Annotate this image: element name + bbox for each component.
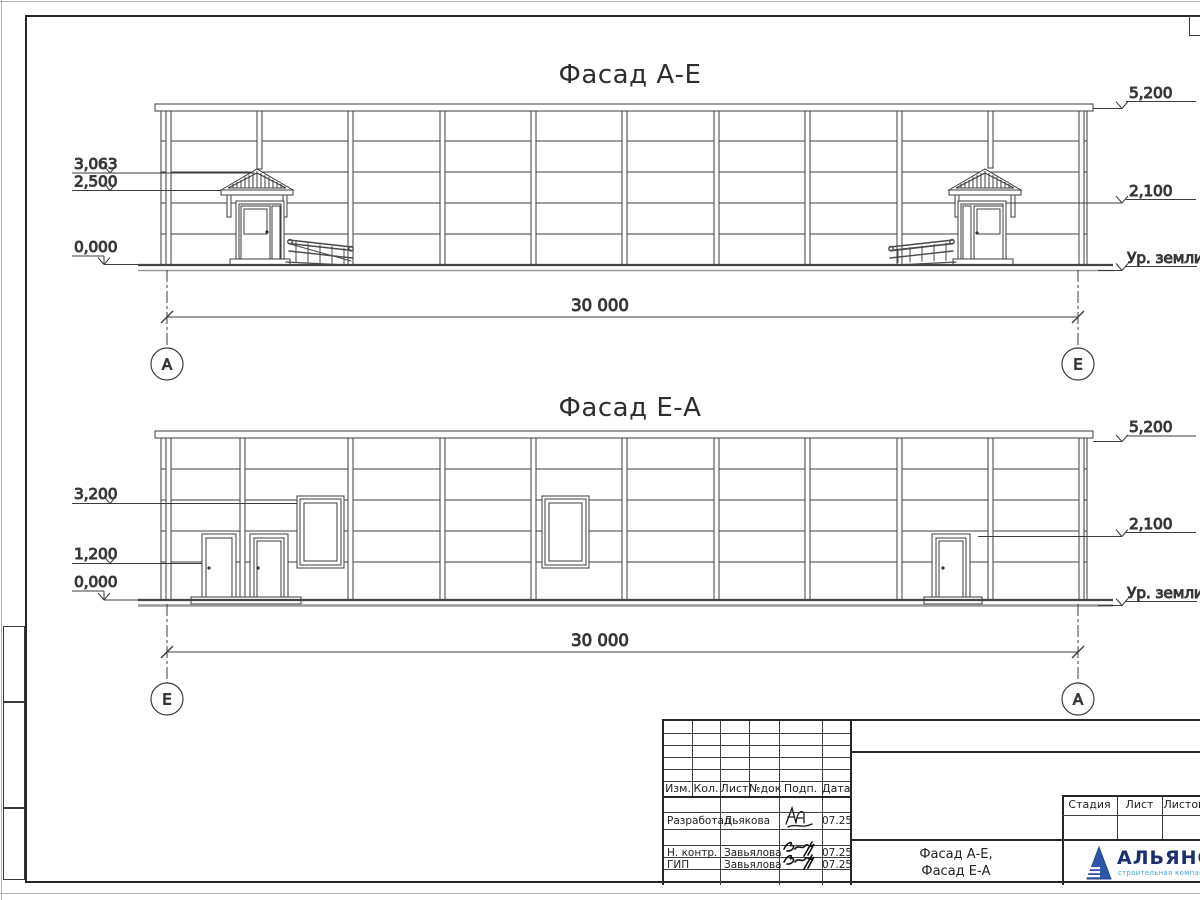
mark-2100-ae: 2,100 [1129,182,1172,200]
mark-1200: 1,200 [74,545,117,563]
mark-5200-ea: 5,200 [1129,418,1172,436]
facade-ea-title: Фасад Е-А [559,393,702,423]
stage-stadia: Стадия [1062,798,1117,812]
axis-bubble-a2: А [1073,691,1084,709]
logo-pyramid-icon [1086,846,1112,880]
staff-role-2: ГИП [667,858,723,872]
title-block: Изм. Кол. Лист №док Подп. Дата Разработа… [662,719,1200,885]
facade-ae-title: Фасад А-Е [559,60,702,90]
axis-bubble-e1: Е [1073,356,1082,374]
company-logo: АЛЬЯНС строительная компания [1062,839,1200,885]
logo-subtitle: строительная компания [1118,869,1200,877]
staff-date-2: 07.25 [822,858,850,872]
mark-2100-ea: 2,100 [1129,515,1172,533]
signature-zavyalova-2 [781,853,821,870]
mark-ground-ea: Ур. земли [1127,584,1200,602]
axis-bubble-e2: Е [162,691,171,709]
col-list: Лист [720,782,749,796]
ground-line-ae [138,265,1113,271]
staff-name-0: Дьякова [724,814,779,828]
logo-name: АЛЬЯНС [1117,848,1200,868]
mark-3200: 3,200 [74,485,117,503]
door-ea-3 [924,534,982,604]
ramp-left-entrance [286,240,356,266]
staff-name-2: Завьялова [724,858,779,872]
col-ndok: №док [749,782,779,796]
door-ea-2 [250,534,288,599]
elevation-marks-ea-right: 5,200 2,100 Ур. земли [978,418,1200,606]
door-ea-1 [202,534,236,599]
elevation-marks-ae-right: 5,200 2,100 Ур. земли [1008,84,1200,271]
col-kol: Кол. [692,782,720,796]
col-data: Дата [822,782,850,796]
drawing-sheet: Фасад А-Е [0,0,1200,900]
facade-ae-view: Фасад А-Е [72,60,1200,380]
staff-date-0: 07.25 [822,814,850,828]
mark-ground-ae: Ур. земли [1127,249,1200,267]
col-izm: Изм. [664,782,692,796]
entrance-right [949,169,1021,265]
span-dimension-ae: 30 000 А Е [151,270,1094,380]
sheet-title: Фасад А-Е, Фасад Е-А [850,846,1062,880]
stage-listov: Листов [1162,798,1200,812]
col-podp: Подп. [779,782,822,796]
entrance-left [221,169,293,265]
mark-0000-ae: 0,000 [74,238,117,256]
mark-5200-ae: 5,200 [1129,84,1172,102]
span-30000-ea: 30 000 [571,631,629,650]
signature-dyakova [781,805,821,831]
staff-role-0: Разработал [667,814,723,828]
stage-list: Лист [1117,798,1162,812]
facade-ea-view: Фасад Е-А [72,393,1200,715]
mark-2500: 2,500 [74,173,117,191]
axis-bubble-a1: А [162,356,173,374]
span-30000-ae: 30 000 [571,296,629,315]
mark-0000-ea: 0,000 [74,573,117,591]
span-dimension-ea: 30 000 Е А [151,604,1094,715]
sheet-title-line1: Фасад А-Е, [850,846,1062,863]
sheet-title-line2: Фасад Е-А [850,863,1062,880]
window-ea-1 [297,496,344,568]
window-ea-2 [542,496,589,568]
mark-3063: 3,063 [74,155,117,173]
